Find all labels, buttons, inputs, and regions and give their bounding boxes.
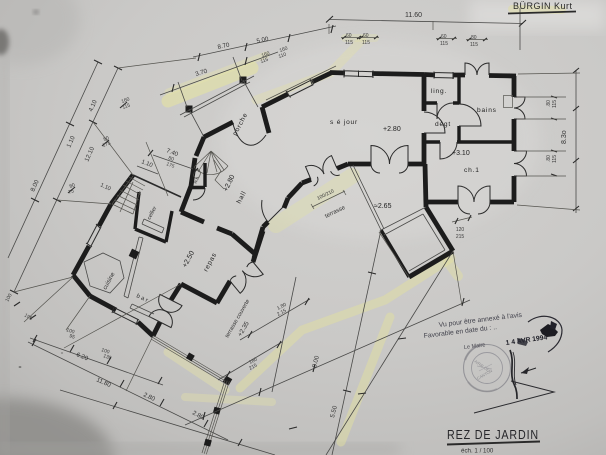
svg-text:11.60: 11.60 <box>405 12 422 19</box>
svg-text:80: 80 <box>471 35 477 41</box>
svg-text:115: 115 <box>362 40 370 46</box>
svg-text:dégt: dégt <box>435 121 451 128</box>
svg-text:60: 60 <box>346 33 352 39</box>
svg-text:ling.: ling. <box>431 88 447 95</box>
svg-text:8.3o: 8.3o <box>561 130 568 144</box>
svg-text:REZ DE JARDIN: REZ DE JARDIN <box>447 428 539 442</box>
svg-text:120: 120 <box>456 227 465 233</box>
svg-text:+3.10: +3.10 <box>452 150 470 157</box>
svg-text:BÜRGIN Kurt: BÜRGIN Kurt <box>513 1 573 11</box>
svg-text:+2.80: +2.80 <box>383 126 401 133</box>
svg-text:115: 115 <box>440 41 448 47</box>
svg-text:115: 115 <box>552 155 558 163</box>
svg-text:60: 60 <box>363 33 369 39</box>
svg-text:≈2.65: ≈2.65 <box>374 203 392 210</box>
svg-text:s é jour: s é jour <box>330 119 358 126</box>
svg-text:60: 60 <box>441 34 447 40</box>
svg-text:115: 115 <box>552 100 558 108</box>
svg-text:215: 215 <box>456 234 465 240</box>
svg-text:ch.1: ch.1 <box>464 167 480 174</box>
svg-text:115: 115 <box>470 42 478 48</box>
svg-text:éch. 1 / 100: éch. 1 / 100 <box>461 448 494 455</box>
svg-text:115: 115 <box>345 40 353 46</box>
svg-text:bains: bains <box>477 107 497 114</box>
